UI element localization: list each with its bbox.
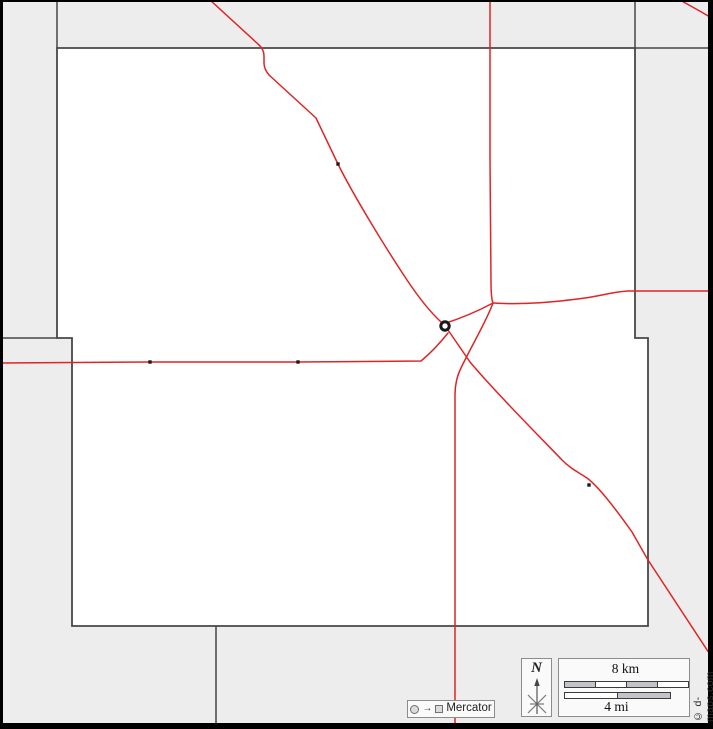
scale-bar-km: [564, 681, 689, 688]
city-dot: [587, 483, 590, 486]
scale-mi-label: 4 mi: [564, 699, 669, 715]
county-outline: [57, 48, 648, 626]
map-page: → Mercator N 8 km 4 mi © d-maps.com: [0, 0, 713, 729]
city-dot: [296, 360, 299, 363]
scale-km-label: 8 km: [564, 661, 687, 677]
north-indicator: N: [521, 658, 552, 717]
county-seat-marker: [441, 322, 449, 330]
projection-arrow-icon: →: [422, 704, 432, 714]
copyright-text: © d-maps.com: [692, 646, 713, 722]
projection-badge: → Mercator: [407, 700, 495, 718]
city-dot: [336, 162, 339, 165]
plane-square-icon: [435, 705, 443, 713]
globe-circle-icon: [410, 705, 419, 714]
city-dot: [148, 360, 151, 363]
compass-star-icon: [522, 675, 552, 717]
scale-bar-mi: [564, 692, 671, 699]
map-svg: [0, 0, 713, 729]
scale-bar-box: 8 km 4 mi: [558, 658, 690, 717]
projection-label: Mercator: [446, 703, 491, 715]
